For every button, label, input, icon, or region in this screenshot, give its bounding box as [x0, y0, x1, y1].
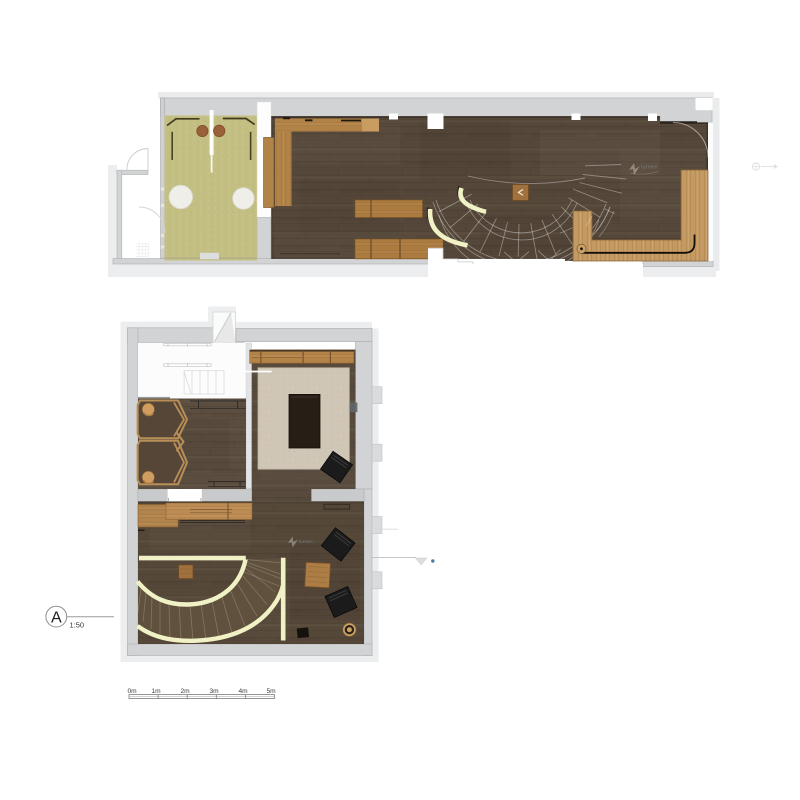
svg-text:1m: 1m [152, 688, 162, 695]
svg-text:5m: 5m [267, 688, 277, 695]
svg-text:3m: 3m [210, 688, 220, 695]
svg-text:2m: 2m [181, 688, 191, 695]
svg-text:lumen: lumen [641, 165, 658, 171]
svg-text:1:50: 1:50 [70, 621, 85, 630]
svg-text:lumen: lumen [299, 539, 313, 544]
svg-text:4m: 4m [239, 688, 249, 695]
svg-text:A: A [51, 609, 62, 626]
svg-text:0m: 0m [128, 688, 138, 695]
